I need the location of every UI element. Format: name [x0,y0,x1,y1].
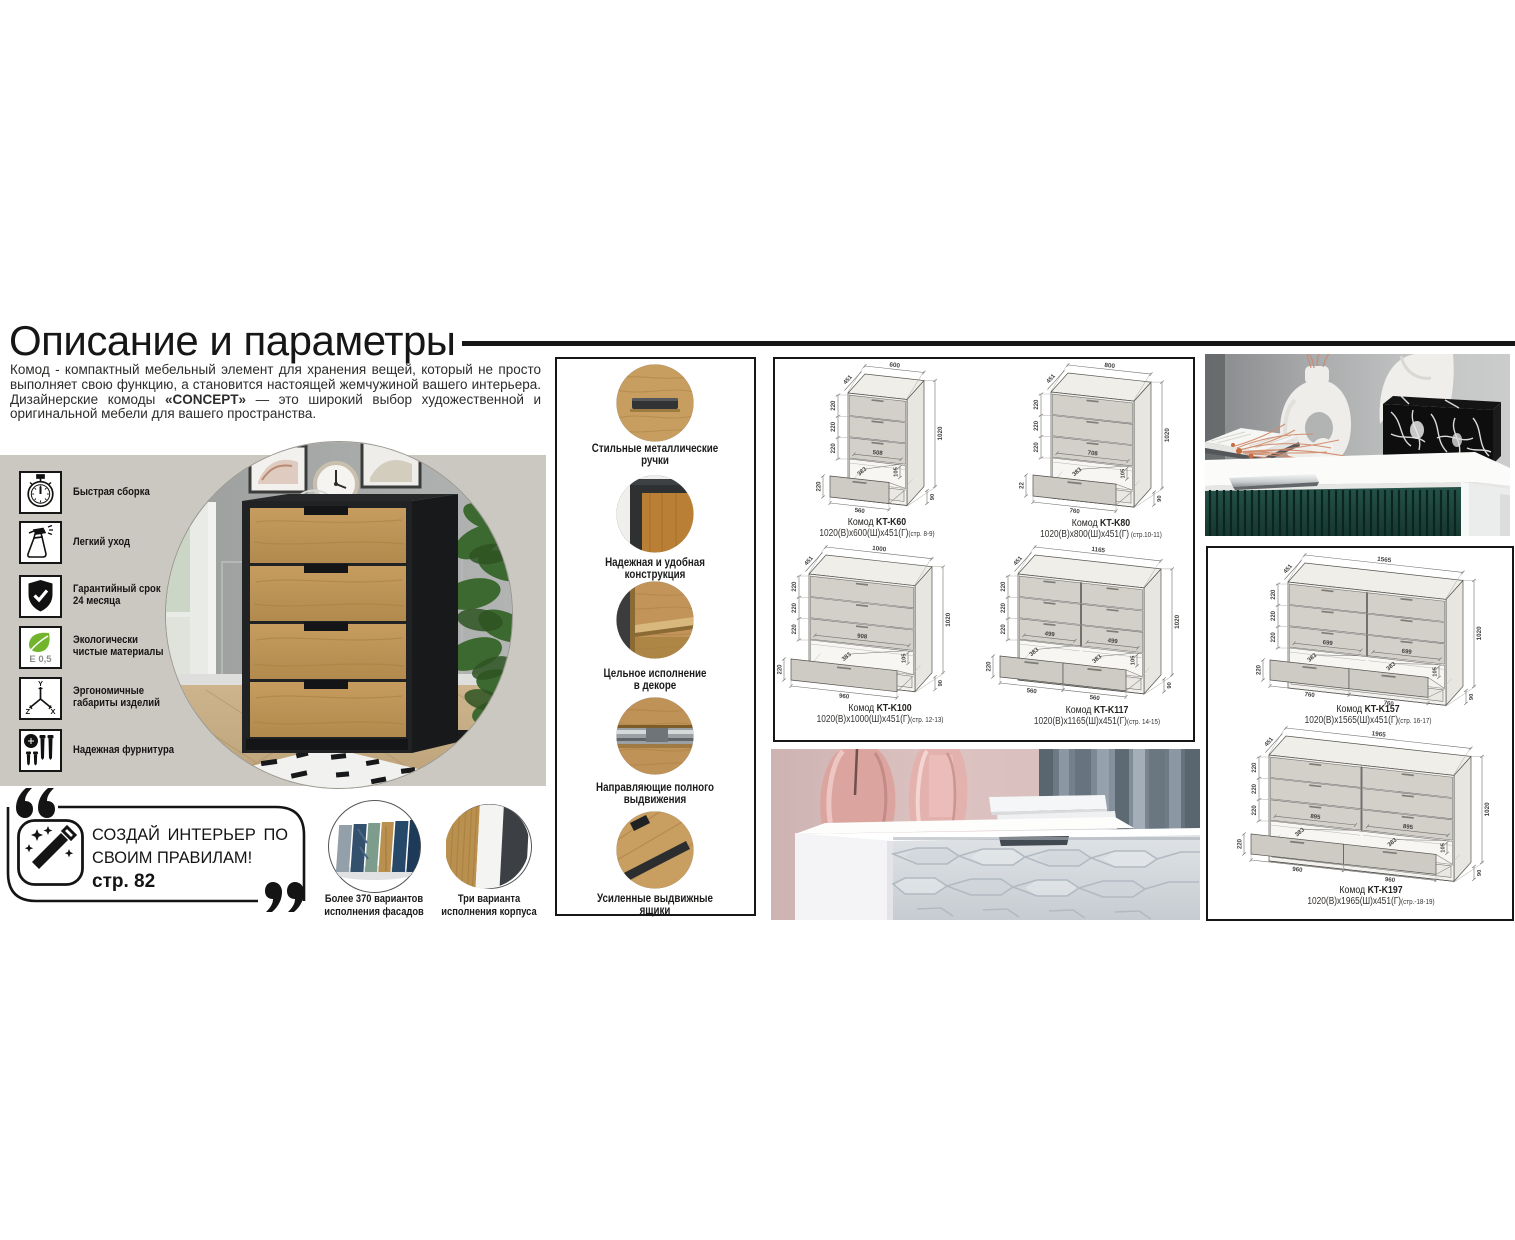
svg-text:220: 220 [831,400,837,411]
svg-text:220: 220 [777,664,783,675]
svg-text:760: 760 [1069,507,1080,515]
svg-text:220: 220 [1001,602,1007,613]
svg-text:220: 220 [831,421,837,432]
svg-text:1020: 1020 [937,426,944,441]
svg-text:105: 105 [901,653,907,663]
svg-text:220: 220 [792,581,798,592]
svg-text:220: 220 [1252,783,1258,794]
svg-text:895: 895 [1403,824,1414,831]
svg-text:220: 220 [1034,420,1040,431]
svg-text:220: 220 [1034,442,1040,453]
svg-text:105: 105 [893,466,899,476]
svg-text:699: 699 [1322,640,1333,647]
svg-text:220: 220 [831,443,837,454]
svg-text:105: 105 [1120,468,1126,478]
svg-text:220: 220 [1001,581,1007,592]
svg-text:220: 220 [1001,624,1007,635]
svg-text:90: 90 [1477,870,1483,876]
svg-text:220: 220 [1252,805,1258,816]
svg-text:220: 220 [1256,664,1262,675]
svg-text:90: 90 [938,680,944,686]
svg-text:90: 90 [1167,682,1173,688]
svg-text:1020: 1020 [1174,614,1181,629]
svg-text:105: 105 [1440,842,1446,852]
svg-text:220: 220 [1237,838,1243,849]
svg-text:1020: 1020 [1476,626,1483,641]
svg-text:1020: 1020 [945,612,952,627]
svg-text:708: 708 [1087,450,1098,457]
svg-text:499: 499 [1107,638,1118,645]
svg-text:220: 220 [986,661,992,672]
svg-text:90: 90 [930,494,936,500]
svg-text:220: 220 [792,624,798,635]
svg-text:90: 90 [1157,495,1163,501]
svg-text:220: 220 [792,602,798,613]
svg-text:1020: 1020 [1484,802,1491,817]
svg-text:105: 105 [1130,655,1136,665]
svg-text:960: 960 [1385,876,1396,884]
svg-text:895: 895 [1310,814,1321,821]
svg-text:699: 699 [1401,649,1412,656]
svg-text:90: 90 [1469,694,1475,700]
svg-text:560: 560 [1026,687,1037,695]
svg-text:220: 220 [1034,399,1040,410]
svg-text:220: 220 [1271,589,1277,600]
svg-text:800: 800 [1104,362,1116,370]
svg-text:22: 22 [1019,482,1025,489]
svg-text:220: 220 [1252,762,1258,773]
svg-text:220: 220 [816,481,822,492]
svg-text:960: 960 [1292,866,1303,874]
svg-text:1020: 1020 [1164,428,1171,443]
svg-text:220: 220 [1271,610,1277,621]
svg-text:600: 600 [889,361,901,369]
svg-text:105: 105 [1432,666,1438,676]
svg-text:908: 908 [857,634,868,641]
svg-text:760: 760 [1383,700,1394,708]
svg-text:760: 760 [1304,691,1315,699]
svg-text:560: 560 [1089,694,1100,702]
svg-text:960: 960 [839,692,850,700]
svg-text:220: 220 [1271,632,1277,643]
svg-text:499: 499 [1044,631,1055,638]
svg-text:560: 560 [854,507,865,515]
svg-text:508: 508 [872,450,883,457]
